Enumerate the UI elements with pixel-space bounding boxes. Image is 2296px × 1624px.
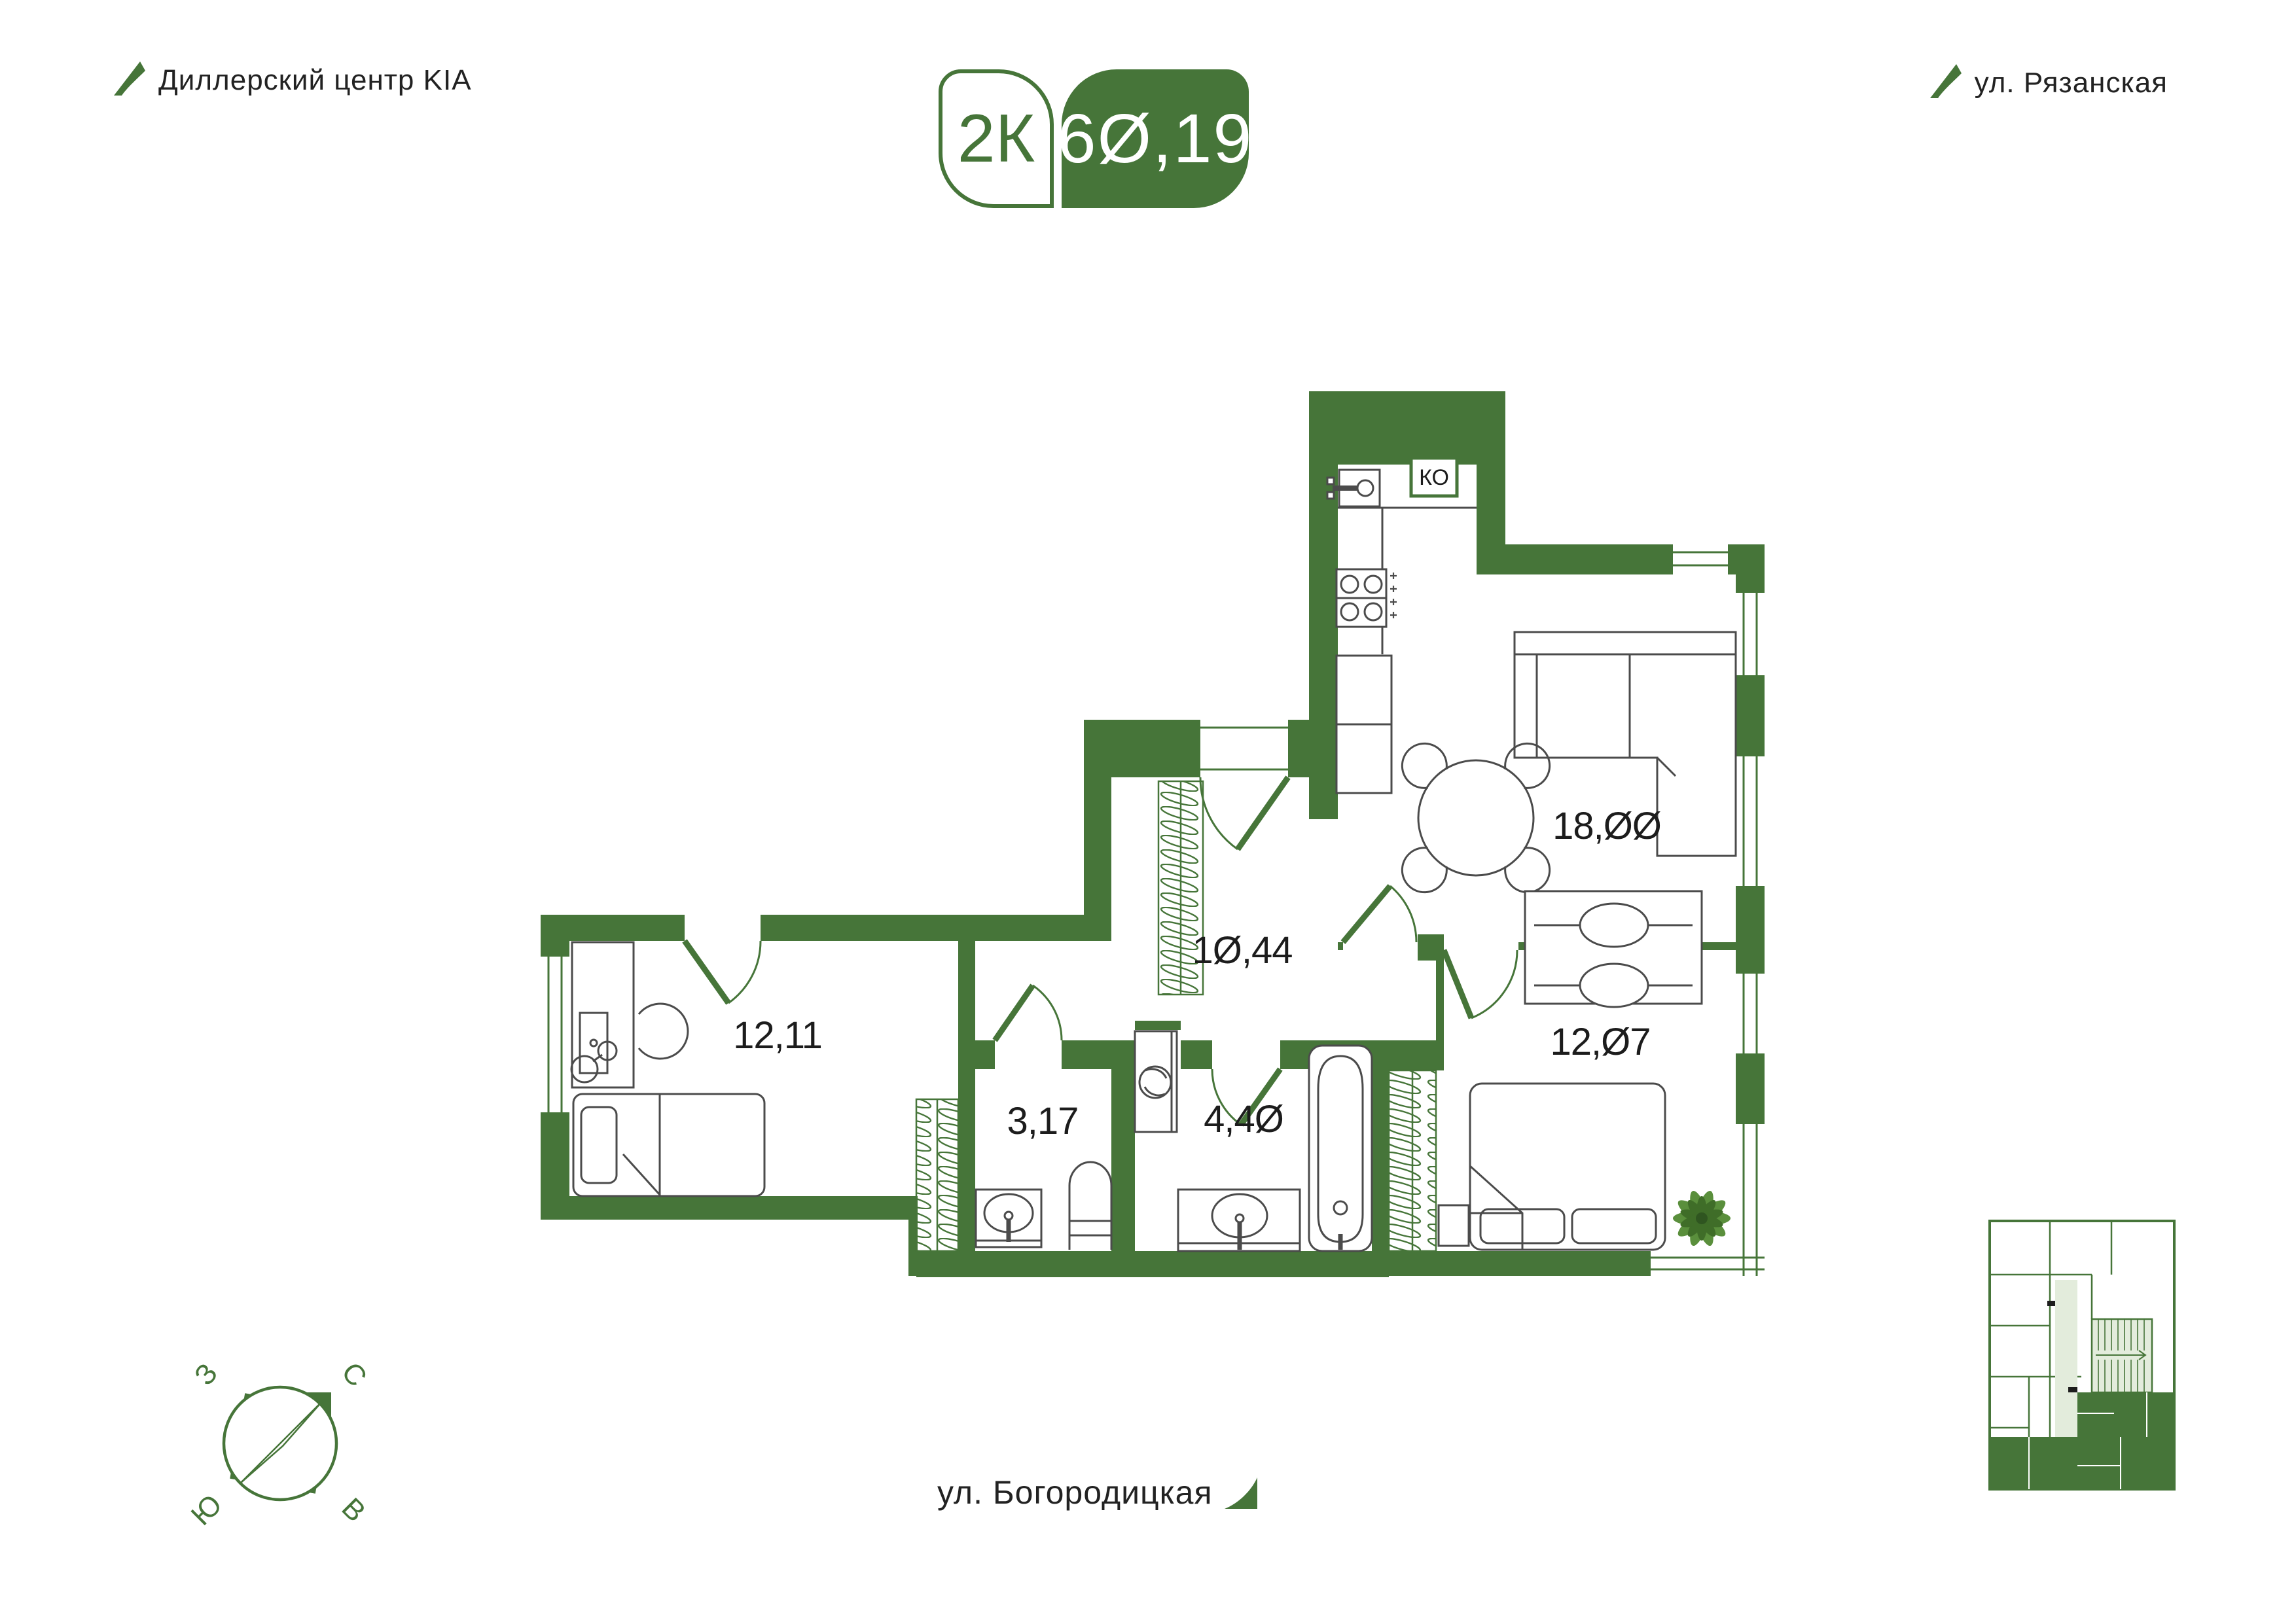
area-label-wc: 3,17 [1007, 1100, 1079, 1142]
compass-west: З [188, 1358, 224, 1392]
bedroom-furniture [1439, 891, 1702, 1250]
building-mini-plan [1990, 1221, 2174, 1489]
area-label-room2: 12,11 [733, 1014, 822, 1057]
compass-north: С [335, 1356, 373, 1393]
kitchen-fixtures [1327, 470, 1477, 793]
area-label-bedroom: 12,Ø7 [1551, 1021, 1651, 1063]
room2-furniture [571, 942, 764, 1196]
compass-east: В [336, 1492, 372, 1528]
floor-plan-page: { "header": { "dealer": "Диллерский цент… [0, 0, 2296, 1624]
plant [1673, 1188, 1731, 1248]
bathroom-fixtures [1135, 1031, 1372, 1251]
compass-south: Ю [185, 1489, 228, 1532]
area-label-bathroom: 4,4Ø [1204, 1098, 1283, 1140]
vent-label: КО [1419, 465, 1449, 490]
living-furniture [1393, 632, 1736, 902]
wc-fixtures [976, 1162, 1111, 1250]
compass: З С Ю В [185, 1356, 373, 1532]
area-label-corridor: 1Ø,44 [1193, 929, 1293, 972]
floor-plan-canvas: КО [0, 0, 2296, 1624]
vent-box: КО [1411, 458, 1457, 496]
area-label-living: 18,ØØ [1552, 805, 1661, 847]
